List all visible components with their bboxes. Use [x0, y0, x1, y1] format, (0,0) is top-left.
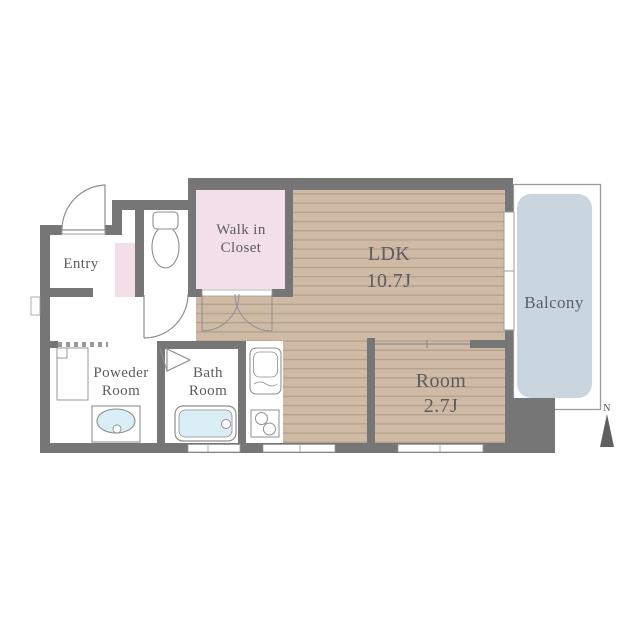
bath-window [188, 445, 240, 453]
wall-toilet-left [135, 210, 144, 297]
bath-room-label-line1: Bath [193, 365, 223, 381]
ldk-size-label: 10.7J [367, 270, 412, 292]
wall-bath-right [238, 341, 246, 443]
washbasin-icon [92, 406, 140, 442]
wic-label-line1: Walk in [216, 222, 266, 238]
entry-shoe-cabinet [115, 243, 135, 297]
wall-wic-bottom-left-stub [188, 289, 202, 297]
toilet-door-swing [144, 294, 188, 338]
north-arrow-icon [600, 414, 614, 447]
stove-icon [251, 410, 279, 437]
wall-right-upper [505, 190, 513, 212]
balcony-label: Balcony [524, 293, 584, 312]
bathtub-icon [175, 406, 236, 441]
ldk-balcony-window [504, 212, 514, 330]
wall-bath-left [157, 341, 165, 443]
room-window [398, 445, 483, 453]
entry-label: Entry [63, 256, 98, 272]
kitchen-sink-icon [250, 348, 281, 394]
ldk-label: LDK [368, 243, 410, 265]
wall-toilet-top [112, 200, 196, 210]
north-label: N [603, 403, 611, 414]
floor-plan-page: Entry Walk in Closet LDK 10.7J Room 2.7J… [0, 0, 640, 640]
wall-powder-top-stub [50, 341, 58, 348]
north-compass: N [600, 403, 614, 447]
kitchen-window [263, 445, 335, 453]
bath-room-label-line2: Room [189, 383, 227, 399]
wall-entry-top-right [105, 225, 122, 235]
entry-door-swing [62, 185, 105, 230]
wall-bath-top [157, 341, 246, 349]
wall-entry-bottom [40, 288, 93, 297]
floor-plan-canvas: Entry Walk in Closet LDK 10.7J Room 2.7J… [0, 0, 640, 640]
wic-door-sill [202, 290, 272, 296]
room-size-label: 2.7J [424, 395, 458, 417]
washer-space-icon [57, 348, 88, 400]
powder-room-label-line2: Room [102, 383, 140, 399]
wall-wic-left [188, 178, 196, 297]
wall-wic-right [285, 190, 293, 297]
wall-top [188, 178, 513, 190]
room-label: Room [416, 370, 467, 392]
toilet-icon [152, 212, 179, 268]
wic-label-line2: Closet [221, 240, 262, 256]
powder-room-label-line1: Poweder [93, 365, 148, 381]
meter-box [31, 297, 40, 315]
wall-left [40, 225, 50, 453]
wall-ldk-room-partition [367, 338, 375, 443]
wall-wic-bottom-right-stub [272, 289, 293, 297]
